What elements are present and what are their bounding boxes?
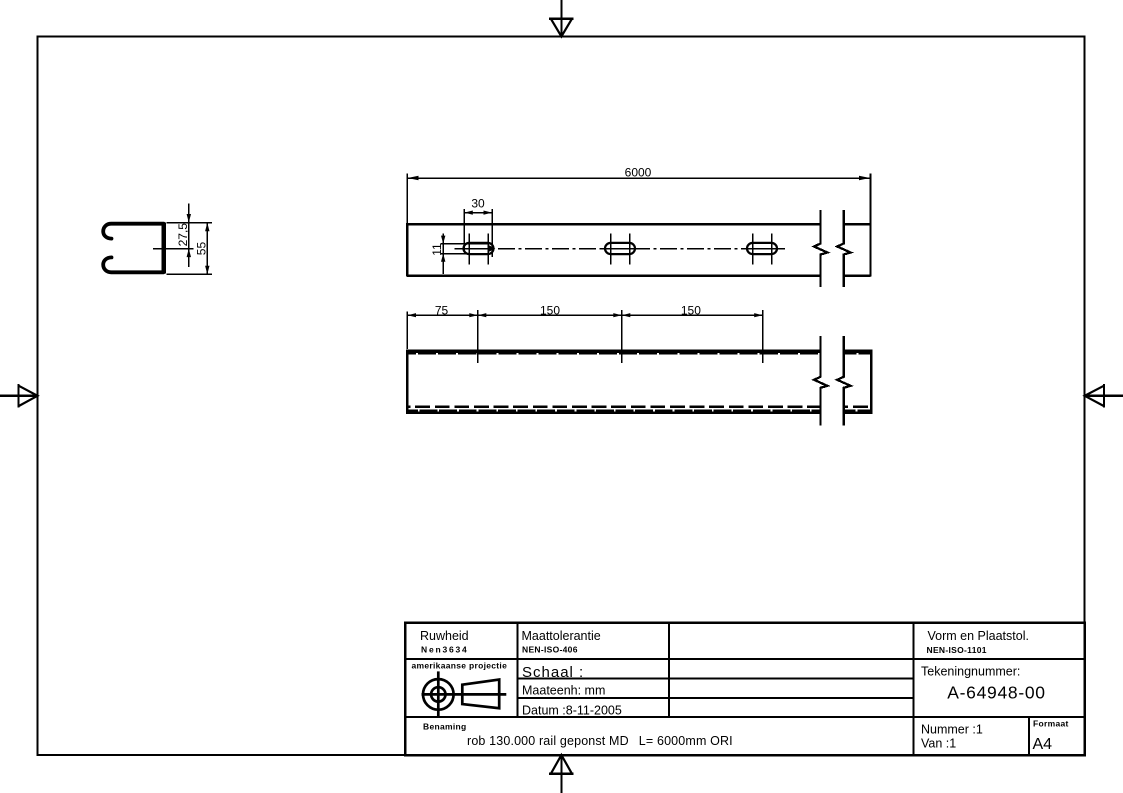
svg-text:A-64948-00: A-64948-00	[947, 682, 1045, 702]
svg-text:150: 150	[540, 304, 560, 318]
svg-text:150: 150	[681, 304, 701, 318]
svg-text:Tekeningnummer:: Tekeningnummer:	[921, 665, 1020, 679]
svg-text:11: 11	[430, 243, 444, 256]
svg-text:6000: 6000	[625, 166, 652, 180]
svg-text:Maattolerantie: Maattolerantie	[522, 629, 601, 643]
svg-text:27,5: 27,5	[176, 223, 190, 247]
svg-text:75: 75	[435, 304, 449, 318]
svg-text:NEN-ISO-1101: NEN-ISO-1101	[927, 645, 987, 655]
svg-text:NEN-ISO-406: NEN-ISO-406	[522, 645, 578, 655]
svg-text:Vorm en Plaatstol.: Vorm en Plaatstol.	[928, 629, 1029, 643]
svg-text:Schaal :: Schaal :	[522, 664, 584, 681]
svg-text:Maateenh: mm: Maateenh: mm	[522, 684, 605, 698]
svg-text:Datum :8-11-2005: Datum :8-11-2005	[522, 704, 622, 718]
svg-text:Benaming: Benaming	[423, 722, 467, 732]
svg-text:55: 55	[194, 242, 208, 256]
svg-text:Nummer :1: Nummer :1	[921, 723, 983, 737]
svg-text:Ruwheid: Ruwheid	[420, 629, 469, 643]
svg-text:Van :1: Van :1	[921, 737, 956, 751]
svg-text:Formaat: Formaat	[1033, 719, 1069, 729]
svg-text:30: 30	[471, 197, 485, 211]
svg-text:A4: A4	[1033, 736, 1053, 753]
svg-text:amerikaanse projectie: amerikaanse projectie	[412, 661, 508, 671]
svg-text:Nen3634: Nen3634	[421, 645, 469, 655]
svg-text:rob 130.000 rail geponst MD L: rob 130.000 rail geponst MD L= 6000mm OR…	[467, 734, 733, 748]
